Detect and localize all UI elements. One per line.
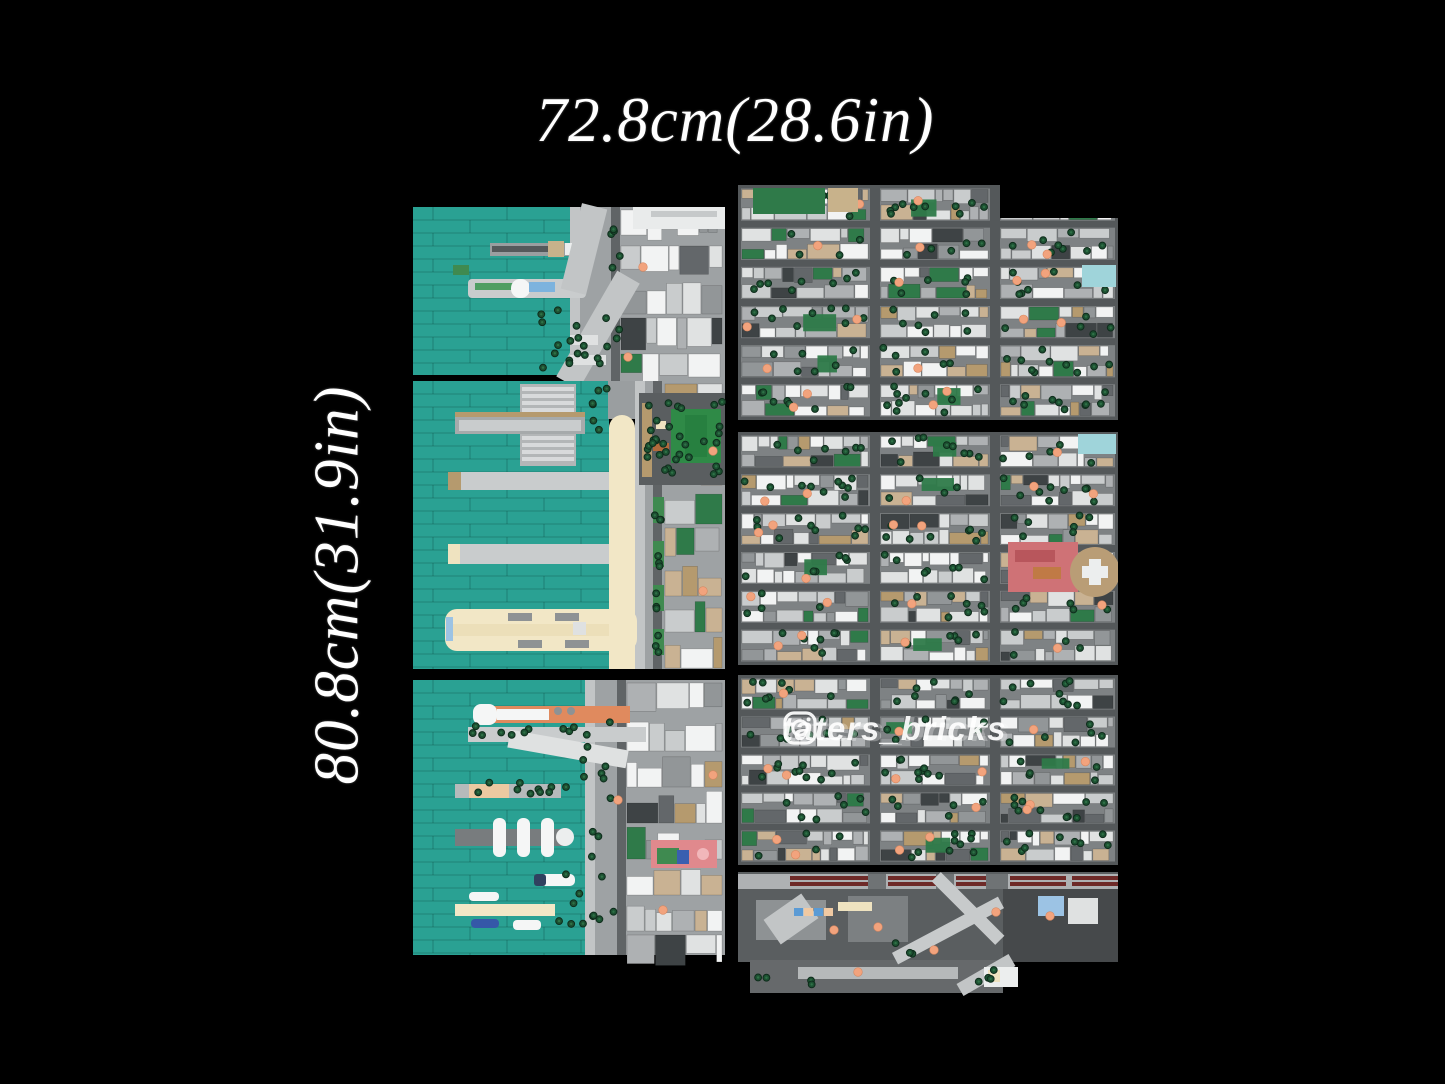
product-dimension-image: 72.8cm(28.6in) 80.8cm(31.9in) taters_bri… bbox=[0, 0, 1445, 1084]
waterfront-panel-top bbox=[413, 203, 725, 390]
highway-panel-bottom bbox=[738, 872, 1118, 996]
waterfront-panel-middle bbox=[413, 381, 725, 669]
width-dimension-label: 72.8cm(28.6in) bbox=[536, 84, 935, 157]
instagram-icon bbox=[782, 710, 818, 746]
height-dimension-label: 80.8cm(31.9in) bbox=[301, 386, 374, 785]
city-panel-bottom-right bbox=[738, 675, 1118, 865]
lego-city-render bbox=[0, 0, 1445, 1084]
city-panel-middle-right bbox=[738, 432, 1120, 665]
waterfront-panel-bottom bbox=[413, 680, 725, 966]
city-panel-top-right bbox=[738, 185, 1118, 420]
watermark: taters_bricks bbox=[782, 710, 1007, 748]
